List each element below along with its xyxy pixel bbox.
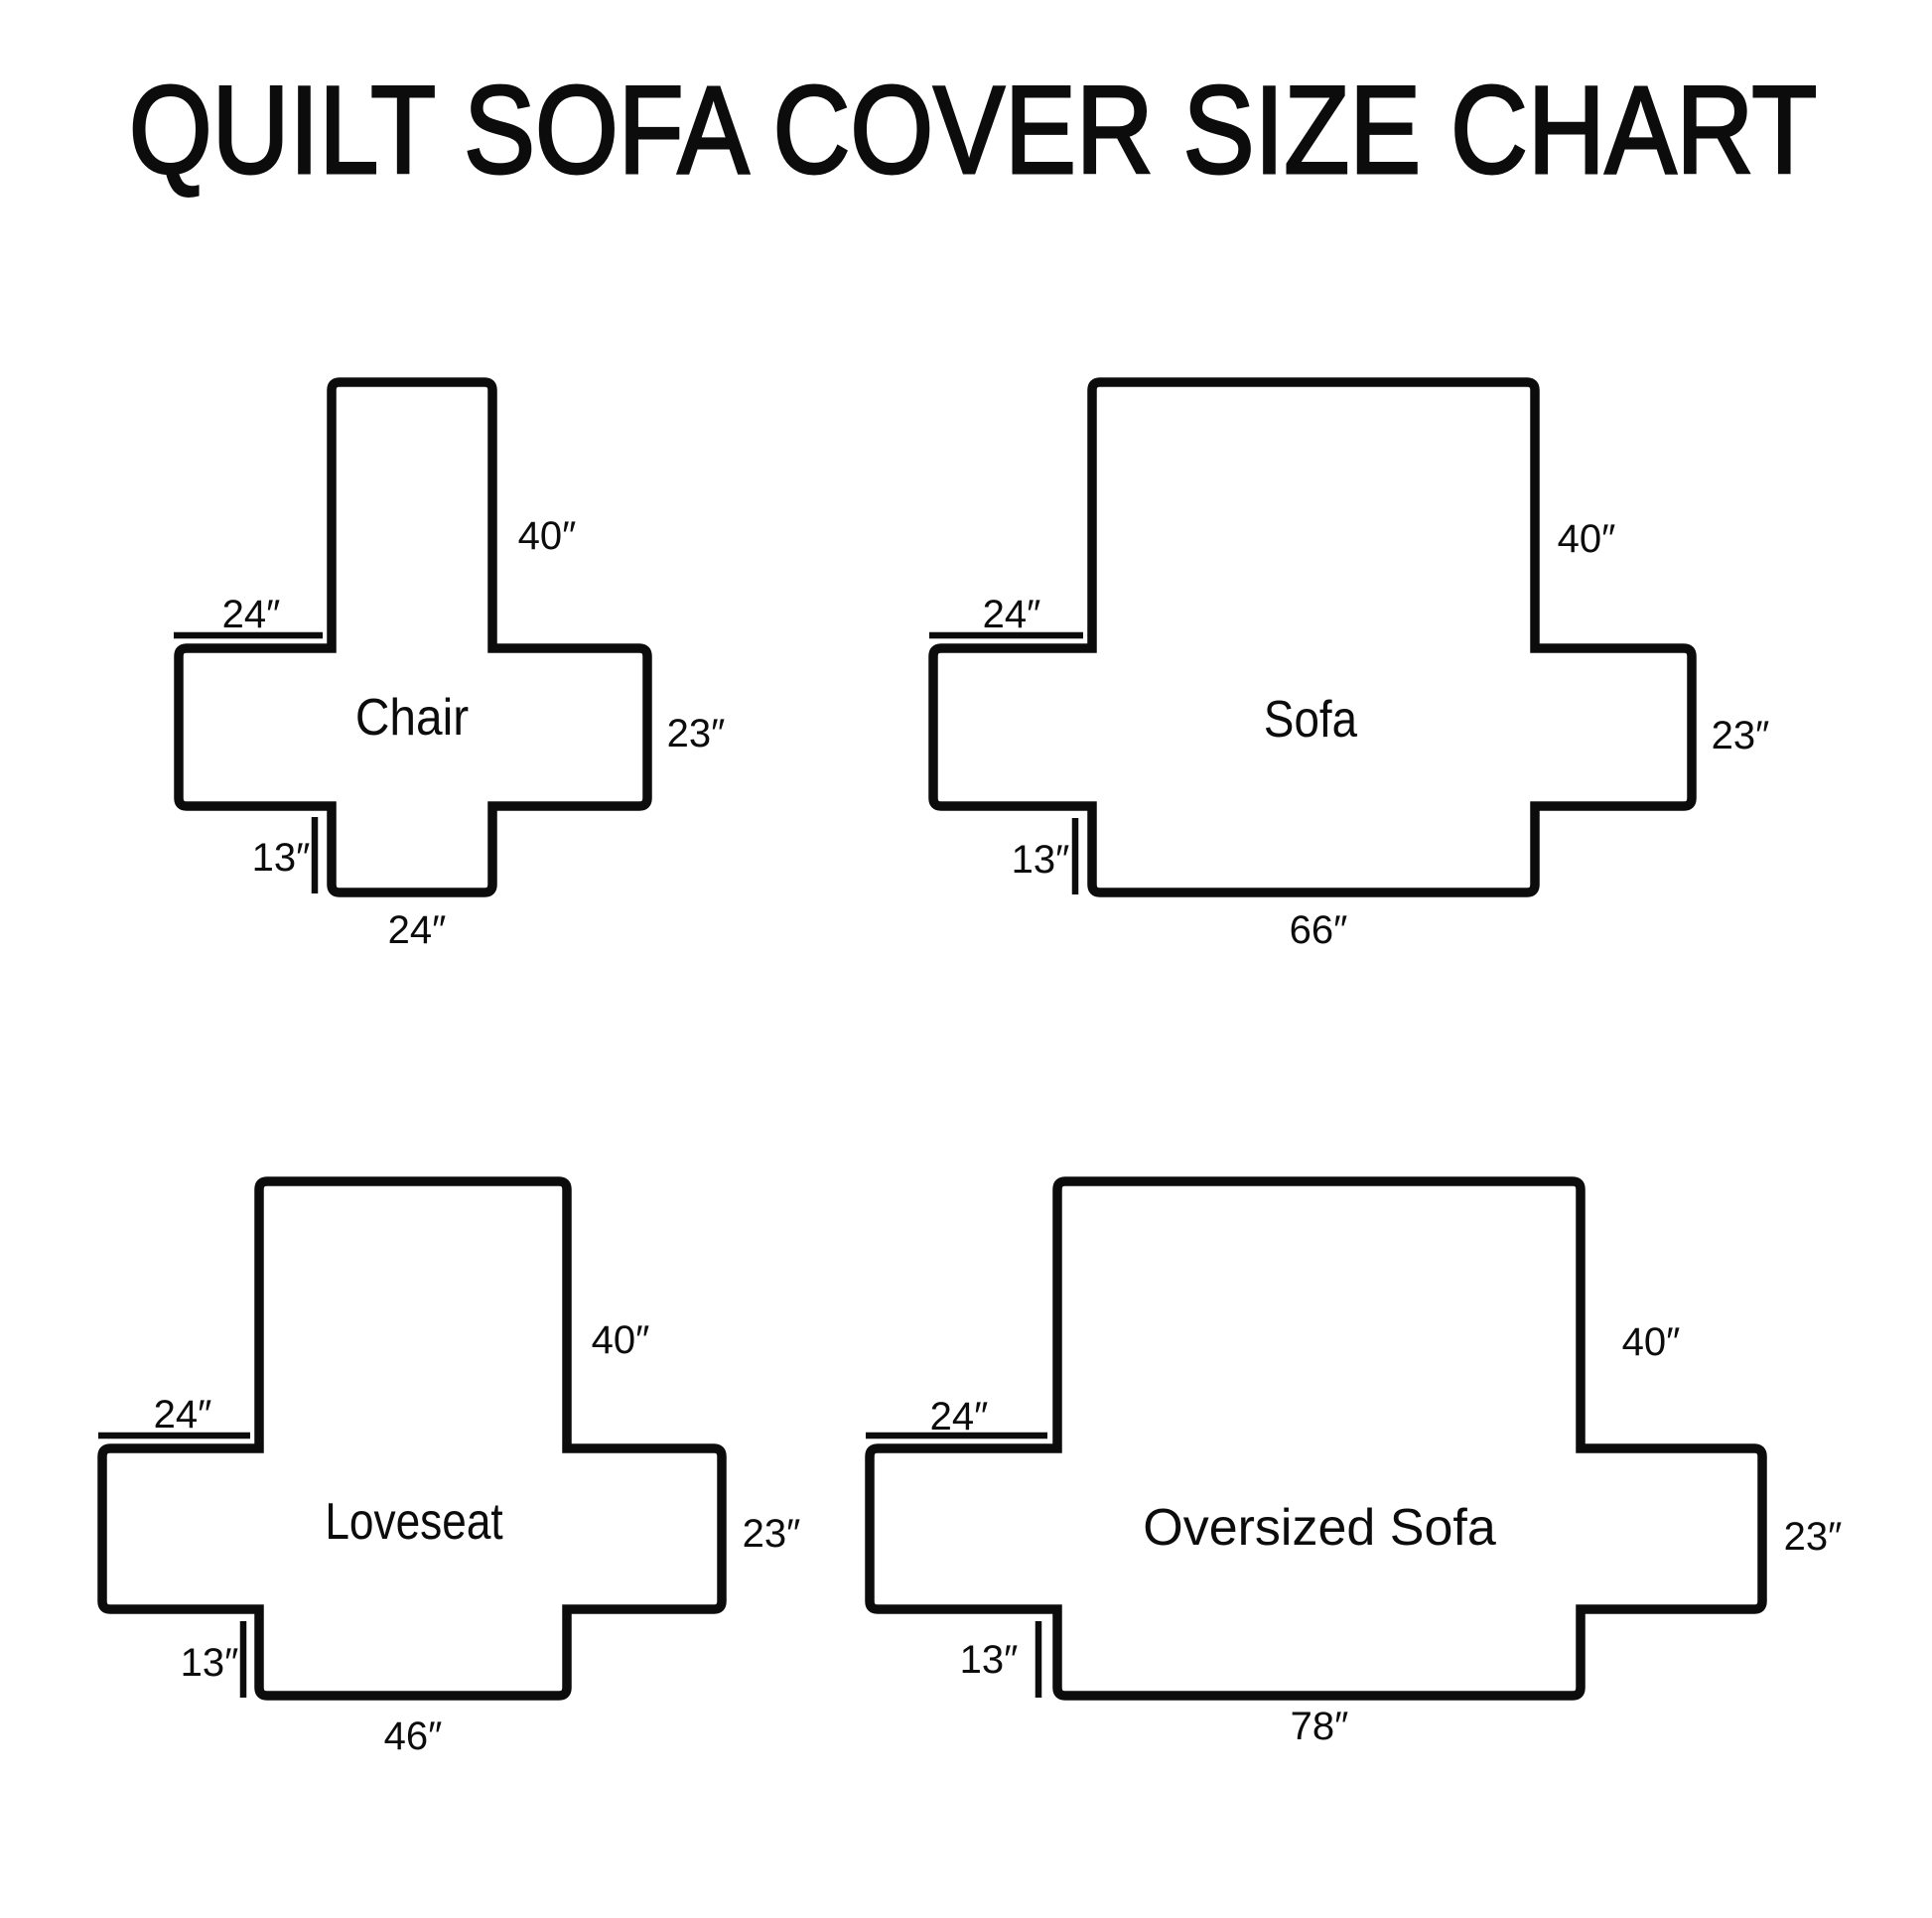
- svg-text:40″: 40″: [1622, 1320, 1681, 1364]
- svg-text:13″: 13″: [181, 1641, 239, 1685]
- svg-text:78″: 78″: [1291, 1705, 1349, 1748]
- svg-text:23″: 23″: [743, 1512, 801, 1556]
- svg-text:23″: 23″: [1784, 1515, 1843, 1559]
- svg-text:66″: 66″: [1290, 908, 1348, 952]
- svg-text:24″: 24″: [930, 1395, 989, 1438]
- svg-text:23″: 23″: [1712, 714, 1770, 757]
- svg-text:Loveseat: Loveseat: [325, 1493, 503, 1551]
- svg-text:QUILT SOFA COVER SIZE CHART: QUILT SOFA COVER SIZE CHART: [129, 60, 1817, 199]
- svg-text:Chair: Chair: [355, 688, 469, 746]
- svg-text:24″: 24″: [388, 908, 447, 952]
- svg-text:Oversized Sofa: Oversized Sofa: [1143, 1499, 1496, 1557]
- svg-text:46″: 46″: [384, 1714, 443, 1758]
- svg-text:24″: 24″: [154, 1393, 212, 1437]
- svg-text:13″: 13″: [1012, 838, 1070, 882]
- svg-text:24″: 24″: [983, 593, 1041, 636]
- svg-text:Sofa: Sofa: [1264, 691, 1358, 748]
- svg-text:40″: 40″: [518, 514, 577, 558]
- svg-text:13″: 13″: [960, 1638, 1019, 1682]
- svg-text:23″: 23″: [667, 712, 726, 755]
- svg-text:13″: 13″: [252, 836, 311, 880]
- svg-text:40″: 40″: [1558, 517, 1616, 561]
- svg-text:24″: 24″: [222, 593, 281, 636]
- svg-text:40″: 40″: [592, 1318, 650, 1362]
